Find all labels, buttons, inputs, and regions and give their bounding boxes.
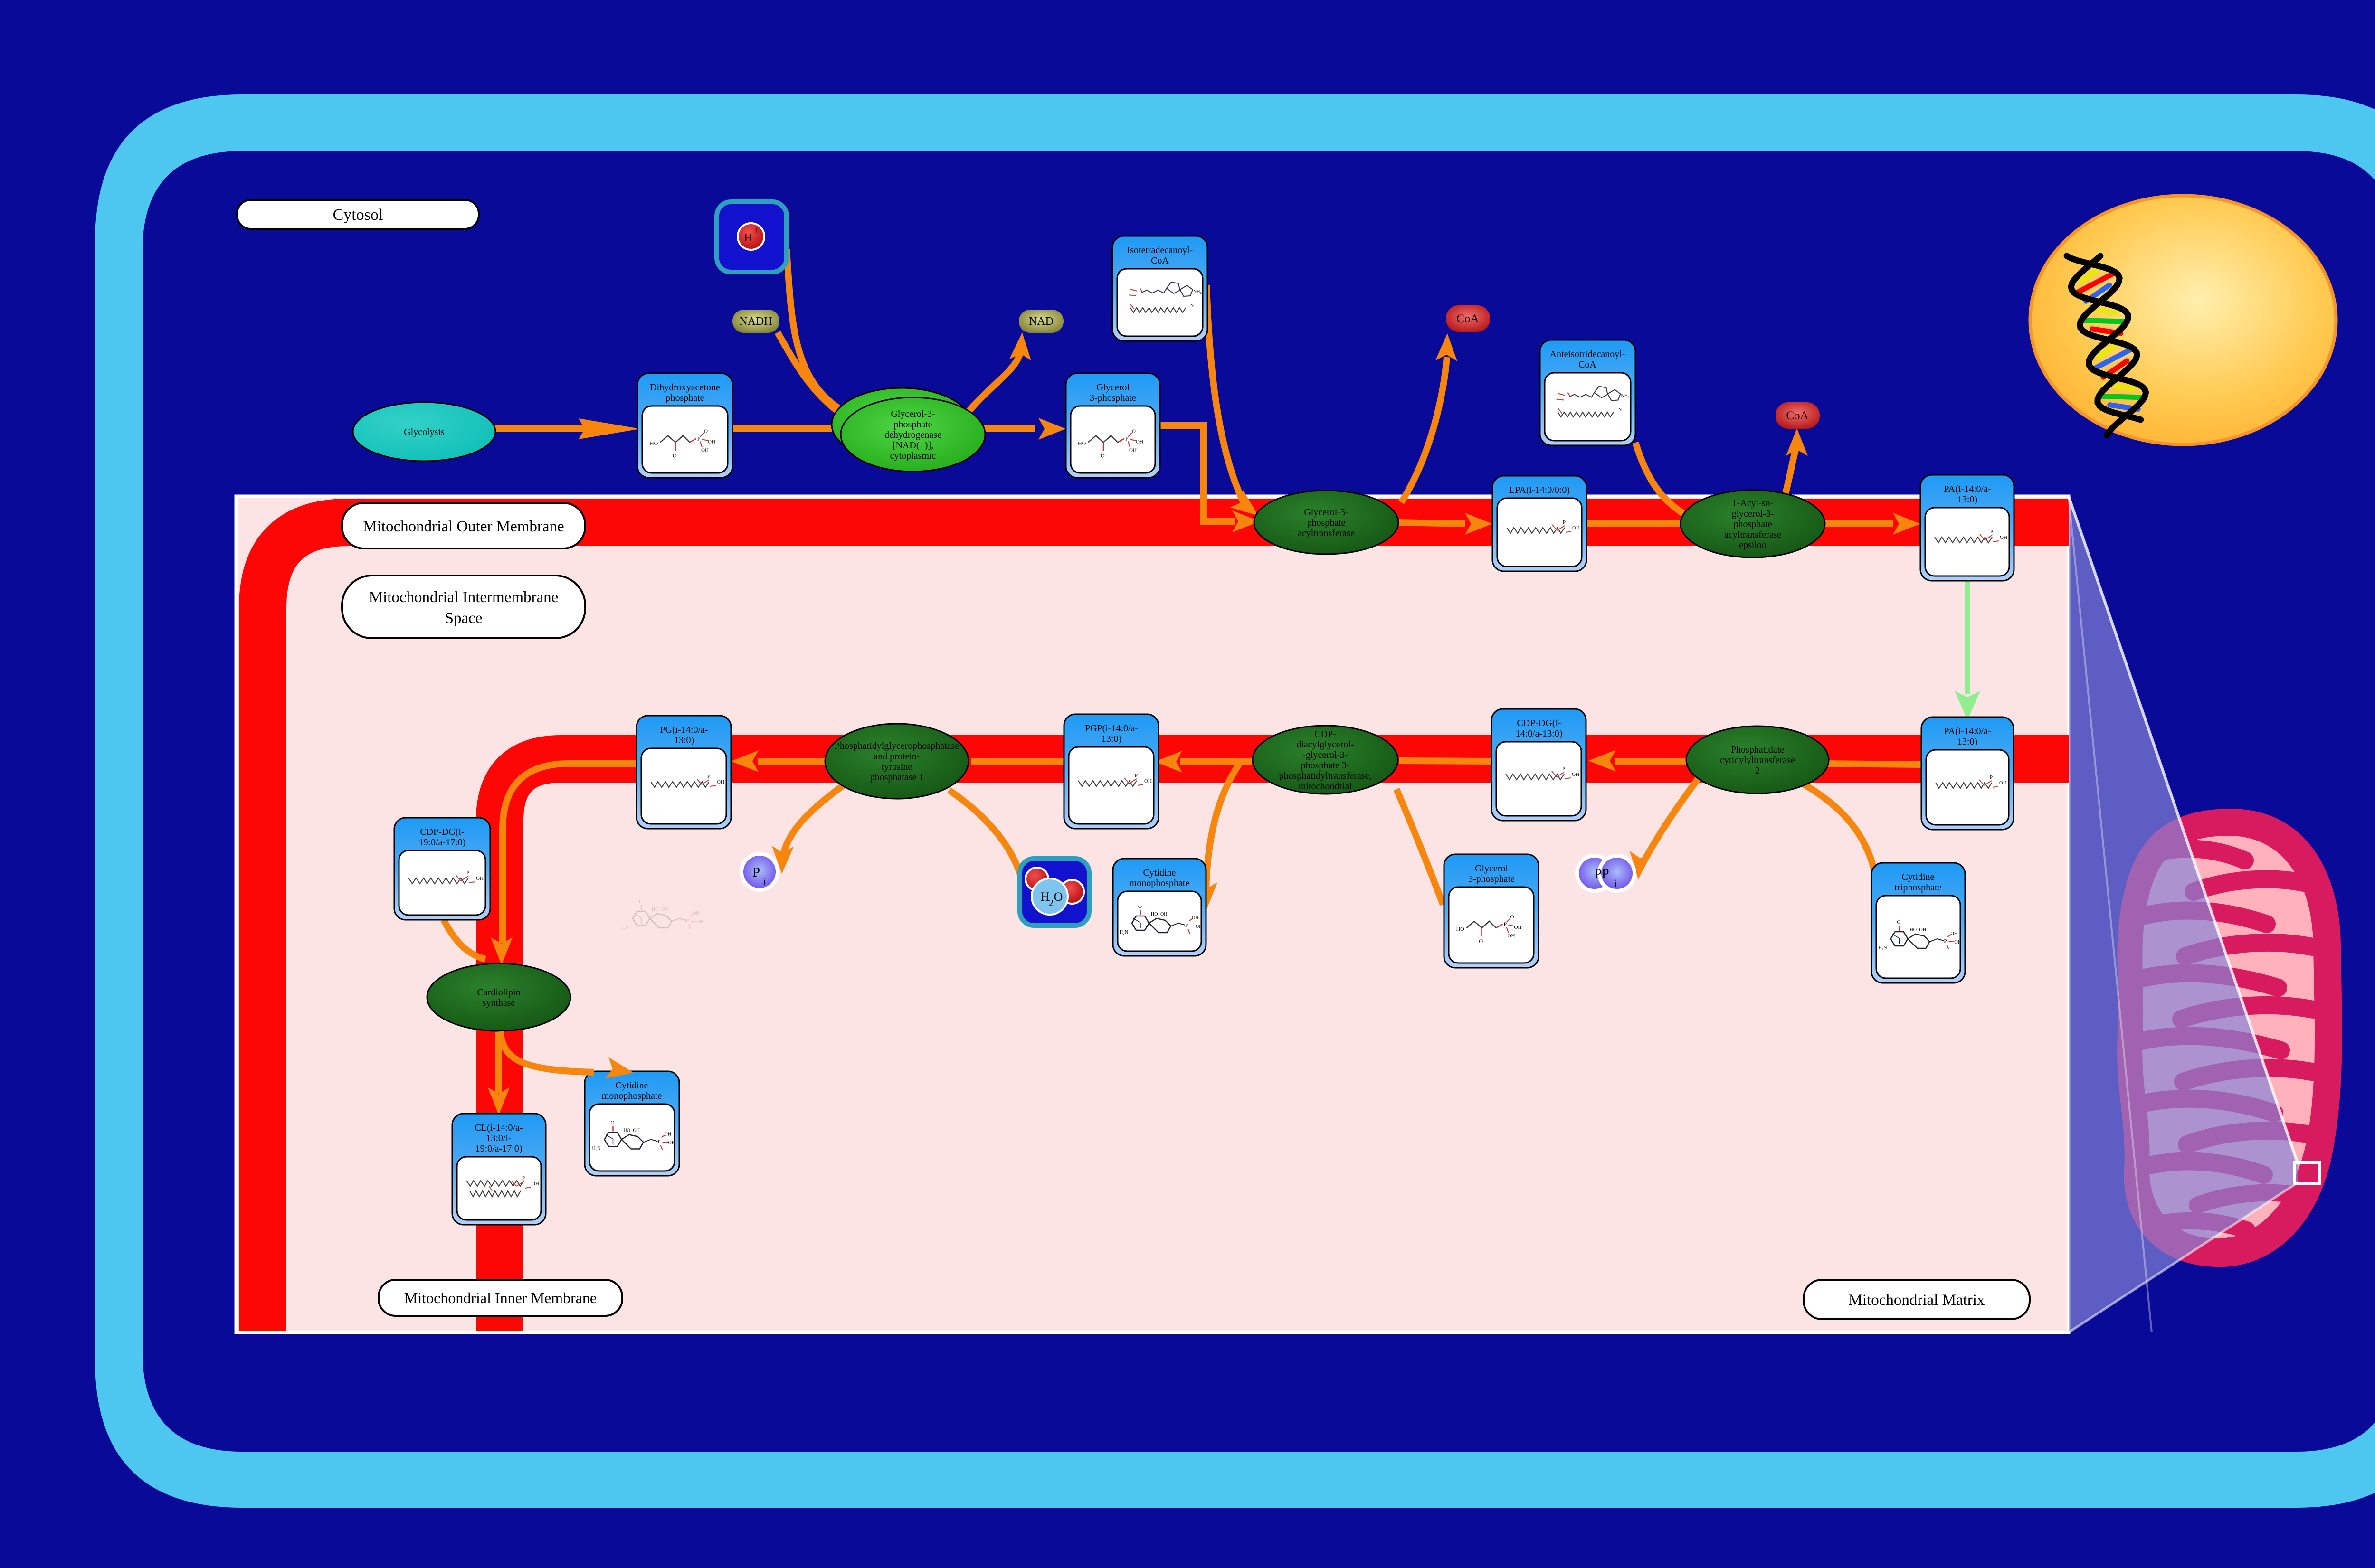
- svg-text:cytoplasmic: cytoplasmic: [890, 451, 936, 461]
- svg-text:O: O: [639, 899, 643, 905]
- svg-text:LPA(i-14:0/0:0): LPA(i-14:0/0:0): [1509, 485, 1570, 495]
- svg-text:O: O: [704, 429, 708, 435]
- svg-text:Cardiolipin: Cardiolipin: [477, 987, 520, 998]
- svg-text:glycerol-3-: glycerol-3-: [1732, 509, 1774, 519]
- svg-text:13:0/i-: 13:0/i-: [486, 1133, 511, 1143]
- svg-text:CoA: CoA: [1578, 359, 1596, 370]
- svg-text:OH: OH: [633, 1128, 640, 1133]
- svg-text:O: O: [1138, 904, 1142, 909]
- svg-text:monophosphate: monophosphate: [1130, 878, 1190, 888]
- svg-text:13:0): 13:0): [1102, 734, 1121, 744]
- svg-text:13:0): 13:0): [674, 735, 694, 746]
- svg-text:P: P: [658, 1139, 661, 1145]
- svg-text:O: O: [1054, 890, 1063, 904]
- svg-text:phosphate: phosphate: [893, 419, 932, 430]
- svg-text:H₂N: H₂N: [1120, 930, 1128, 935]
- svg-text:Space: Space: [445, 610, 483, 627]
- svg-text:19:0/a-17:0): 19:0/a-17:0): [419, 837, 466, 848]
- svg-text:OH: OH: [532, 1181, 539, 1187]
- svg-text:Mitochondrial Intermembrane: Mitochondrial Intermembrane: [369, 589, 559, 606]
- svg-text:13:0): 13:0): [1957, 737, 1977, 747]
- svg-text:O: O: [1897, 919, 1901, 925]
- svg-text:Cytosol: Cytosol: [333, 206, 383, 224]
- svg-text:P: P: [1185, 923, 1188, 928]
- svg-text:OH: OH: [1196, 924, 1202, 929]
- svg-text:-glycerol-3-: -glycerol-3-: [1302, 750, 1348, 760]
- svg-text:OH: OH: [717, 779, 724, 785]
- svg-text:HO: HO: [1910, 927, 1917, 933]
- svg-text:O: O: [1510, 914, 1514, 920]
- svg-text:OH: OH: [1160, 912, 1167, 917]
- svg-text:OH: OH: [1136, 439, 1143, 445]
- svg-text:Glycerol: Glycerol: [1475, 863, 1508, 874]
- svg-text:Glycerol-3-: Glycerol-3-: [1304, 507, 1348, 518]
- svg-text:NH₂: NH₂: [1193, 289, 1202, 294]
- svg-text:Anteisotridecanoyl-: Anteisotridecanoyl-: [1550, 349, 1625, 359]
- svg-text:P: P: [466, 870, 469, 876]
- svg-text:phosphate: phosphate: [665, 393, 704, 403]
- svg-text:OH: OH: [661, 907, 668, 912]
- svg-text:OH: OH: [1955, 940, 1961, 945]
- svg-text:phosphatidyltransferase,: phosphatidyltransferase,: [1279, 771, 1372, 781]
- svg-text:OH: OH: [1129, 448, 1137, 453]
- svg-text:OH: OH: [1508, 933, 1515, 939]
- svg-text:14:0/a-13:0): 14:0/a-13:0): [1516, 728, 1563, 739]
- svg-text:H: H: [1041, 890, 1050, 904]
- svg-text:CoA: CoA: [1786, 409, 1808, 422]
- svg-text:OH: OH: [1999, 780, 2007, 786]
- svg-text:OH: OH: [693, 911, 699, 916]
- svg-text:19:0/a-17:0): 19:0/a-17:0): [475, 1143, 522, 1154]
- svg-text:HO: HO: [650, 440, 658, 447]
- svg-text:and protein-: and protein-: [874, 751, 920, 762]
- svg-text:cytidylyltransferase: cytidylyltransferase: [1720, 755, 1795, 765]
- svg-text:O: O: [673, 453, 677, 459]
- svg-text:O: O: [611, 1120, 615, 1126]
- svg-text:PP: PP: [1594, 867, 1609, 881]
- svg-text:P: P: [1563, 520, 1566, 525]
- svg-text:Phosphatidylglycerophosphatase: Phosphatidylglycerophosphatase: [835, 741, 959, 751]
- svg-text:PG(i-14:0/a-: PG(i-14:0/a-: [660, 725, 708, 735]
- svg-text:[NAD(+)],: [NAD(+)],: [893, 440, 933, 451]
- svg-text:OH: OH: [668, 1141, 675, 1146]
- svg-text:OH: OH: [476, 876, 484, 881]
- svg-text:Glycolysis: Glycolysis: [404, 427, 445, 437]
- svg-text:Isotetradecanoyl-: Isotetradecanoyl-: [1127, 245, 1193, 255]
- svg-text:NAD: NAD: [1029, 315, 1054, 328]
- svg-text:Phosphatidate: Phosphatidate: [1731, 745, 1784, 755]
- svg-text:13:0): 13:0): [1957, 494, 1977, 505]
- svg-text:HO: HO: [1151, 912, 1158, 917]
- svg-text:OH: OH: [701, 448, 709, 453]
- svg-text:H₂N: H₂N: [1879, 945, 1887, 951]
- svg-text:H₂N: H₂N: [620, 925, 629, 930]
- svg-text:OH: OH: [1951, 931, 1957, 936]
- svg-text:PA(i-14:0/a-: PA(i-14:0/a-: [1944, 484, 1991, 494]
- svg-text:monophosphate: monophosphate: [602, 1091, 662, 1101]
- svg-text:CDP-DG(i-: CDP-DG(i-: [420, 827, 464, 837]
- svg-text:N: N: [1618, 407, 1622, 413]
- svg-text:Dihydroxyacetone: Dihydroxyacetone: [650, 382, 720, 393]
- svg-text:triphosphate: triphosphate: [1895, 882, 1942, 893]
- svg-text:PA(i-14:0/a-: PA(i-14:0/a-: [1944, 726, 1991, 737]
- svg-text:phosphate: phosphate: [1307, 518, 1345, 528]
- svg-text:P: P: [686, 918, 689, 924]
- svg-text:+: +: [753, 224, 759, 236]
- svg-text:Cytidine: Cytidine: [616, 1080, 648, 1091]
- svg-text:i: i: [763, 876, 767, 888]
- svg-text:CDP-: CDP-: [1314, 729, 1336, 739]
- svg-text:Cytidine: Cytidine: [1143, 868, 1176, 878]
- svg-text:O: O: [1479, 938, 1483, 945]
- svg-text:PGP(i-14:0/a-: PGP(i-14:0/a-: [1085, 723, 1138, 734]
- svg-text:acyltransferase: acyltransferase: [1298, 528, 1355, 538]
- svg-text:CDP-DG(i-: CDP-DG(i-: [1517, 718, 1561, 728]
- svg-text:HO: HO: [1078, 440, 1086, 447]
- svg-text:Glycerol-3-: Glycerol-3-: [891, 409, 935, 419]
- svg-text:tyrosine: tyrosine: [882, 762, 912, 772]
- svg-text:OH: OH: [2000, 535, 2007, 540]
- svg-text:Mitochondrial Matrix: Mitochondrial Matrix: [1849, 1292, 1985, 1309]
- svg-text:NADH: NADH: [739, 315, 772, 328]
- svg-text:Cytidine: Cytidine: [1902, 872, 1935, 882]
- svg-text:NH₂: NH₂: [1621, 394, 1630, 399]
- svg-text:3-phosphate: 3-phosphate: [1468, 874, 1515, 884]
- svg-text:i: i: [1614, 878, 1617, 889]
- svg-text:OH: OH: [1144, 778, 1152, 784]
- svg-text:phosphate 3-: phosphate 3-: [1301, 760, 1350, 771]
- svg-text:2: 2: [1049, 898, 1054, 908]
- svg-text:HO: HO: [1456, 926, 1465, 932]
- svg-text:phosphatase 1: phosphatase 1: [870, 772, 924, 783]
- svg-text:HO: HO: [652, 907, 658, 912]
- svg-text:N: N: [1190, 303, 1194, 309]
- svg-text:diacylglycerol-: diacylglycerol-: [1296, 739, 1354, 750]
- svg-text:O: O: [1132, 429, 1136, 435]
- svg-text:P: P: [1944, 938, 1947, 944]
- svg-text:P: P: [752, 865, 760, 880]
- svg-text:P: P: [1562, 766, 1565, 772]
- svg-text:CoA: CoA: [1456, 312, 1479, 325]
- svg-text:synthase: synthase: [483, 998, 515, 1008]
- svg-text:CL(i-14:0/a-: CL(i-14:0/a-: [475, 1123, 522, 1133]
- svg-text:H: H: [744, 232, 752, 244]
- svg-text:P: P: [1135, 773, 1138, 778]
- svg-text:P: P: [1990, 529, 1993, 535]
- svg-text:acyltransferase: acyltransferase: [1724, 529, 1781, 540]
- svg-text:1-Acyl-sn-: 1-Acyl-sn-: [1732, 498, 1774, 509]
- svg-text:Glycerol: Glycerol: [1096, 382, 1130, 393]
- svg-text:CoA: CoA: [1151, 255, 1169, 266]
- svg-text:Mitochondrial Inner Membrane: Mitochondrial Inner Membrane: [404, 1289, 597, 1306]
- svg-text:OH: OH: [1192, 916, 1198, 921]
- svg-text:epsilon: epsilon: [1739, 540, 1767, 550]
- svg-text:HO: HO: [624, 1128, 630, 1133]
- svg-text:OH: OH: [1572, 525, 1580, 531]
- svg-text:OH: OH: [1572, 772, 1579, 777]
- svg-text:H₂N: H₂N: [592, 1146, 601, 1152]
- svg-text:OH: OH: [708, 439, 715, 445]
- svg-text:P: P: [1990, 775, 1993, 780]
- svg-text:3-phosphate: 3-phosphate: [1090, 393, 1136, 403]
- svg-text:OH: OH: [696, 919, 703, 925]
- svg-text:OH: OH: [1514, 925, 1522, 930]
- svg-text:2: 2: [1755, 765, 1760, 776]
- svg-text:P: P: [707, 774, 710, 779]
- svg-text:dehydrogenase: dehydrogenase: [884, 430, 941, 440]
- svg-text:phosphate: phosphate: [1733, 519, 1772, 529]
- svg-text:Mitochondrial Outer Membrane: Mitochondrial Outer Membrane: [363, 518, 564, 535]
- svg-text:OH: OH: [1919, 927, 1926, 933]
- svg-text:OH: OH: [665, 1132, 671, 1137]
- svg-text:P: P: [522, 1175, 525, 1181]
- svg-text:mitochondrial: mitochondrial: [1299, 781, 1352, 792]
- svg-text:O: O: [1101, 453, 1105, 459]
